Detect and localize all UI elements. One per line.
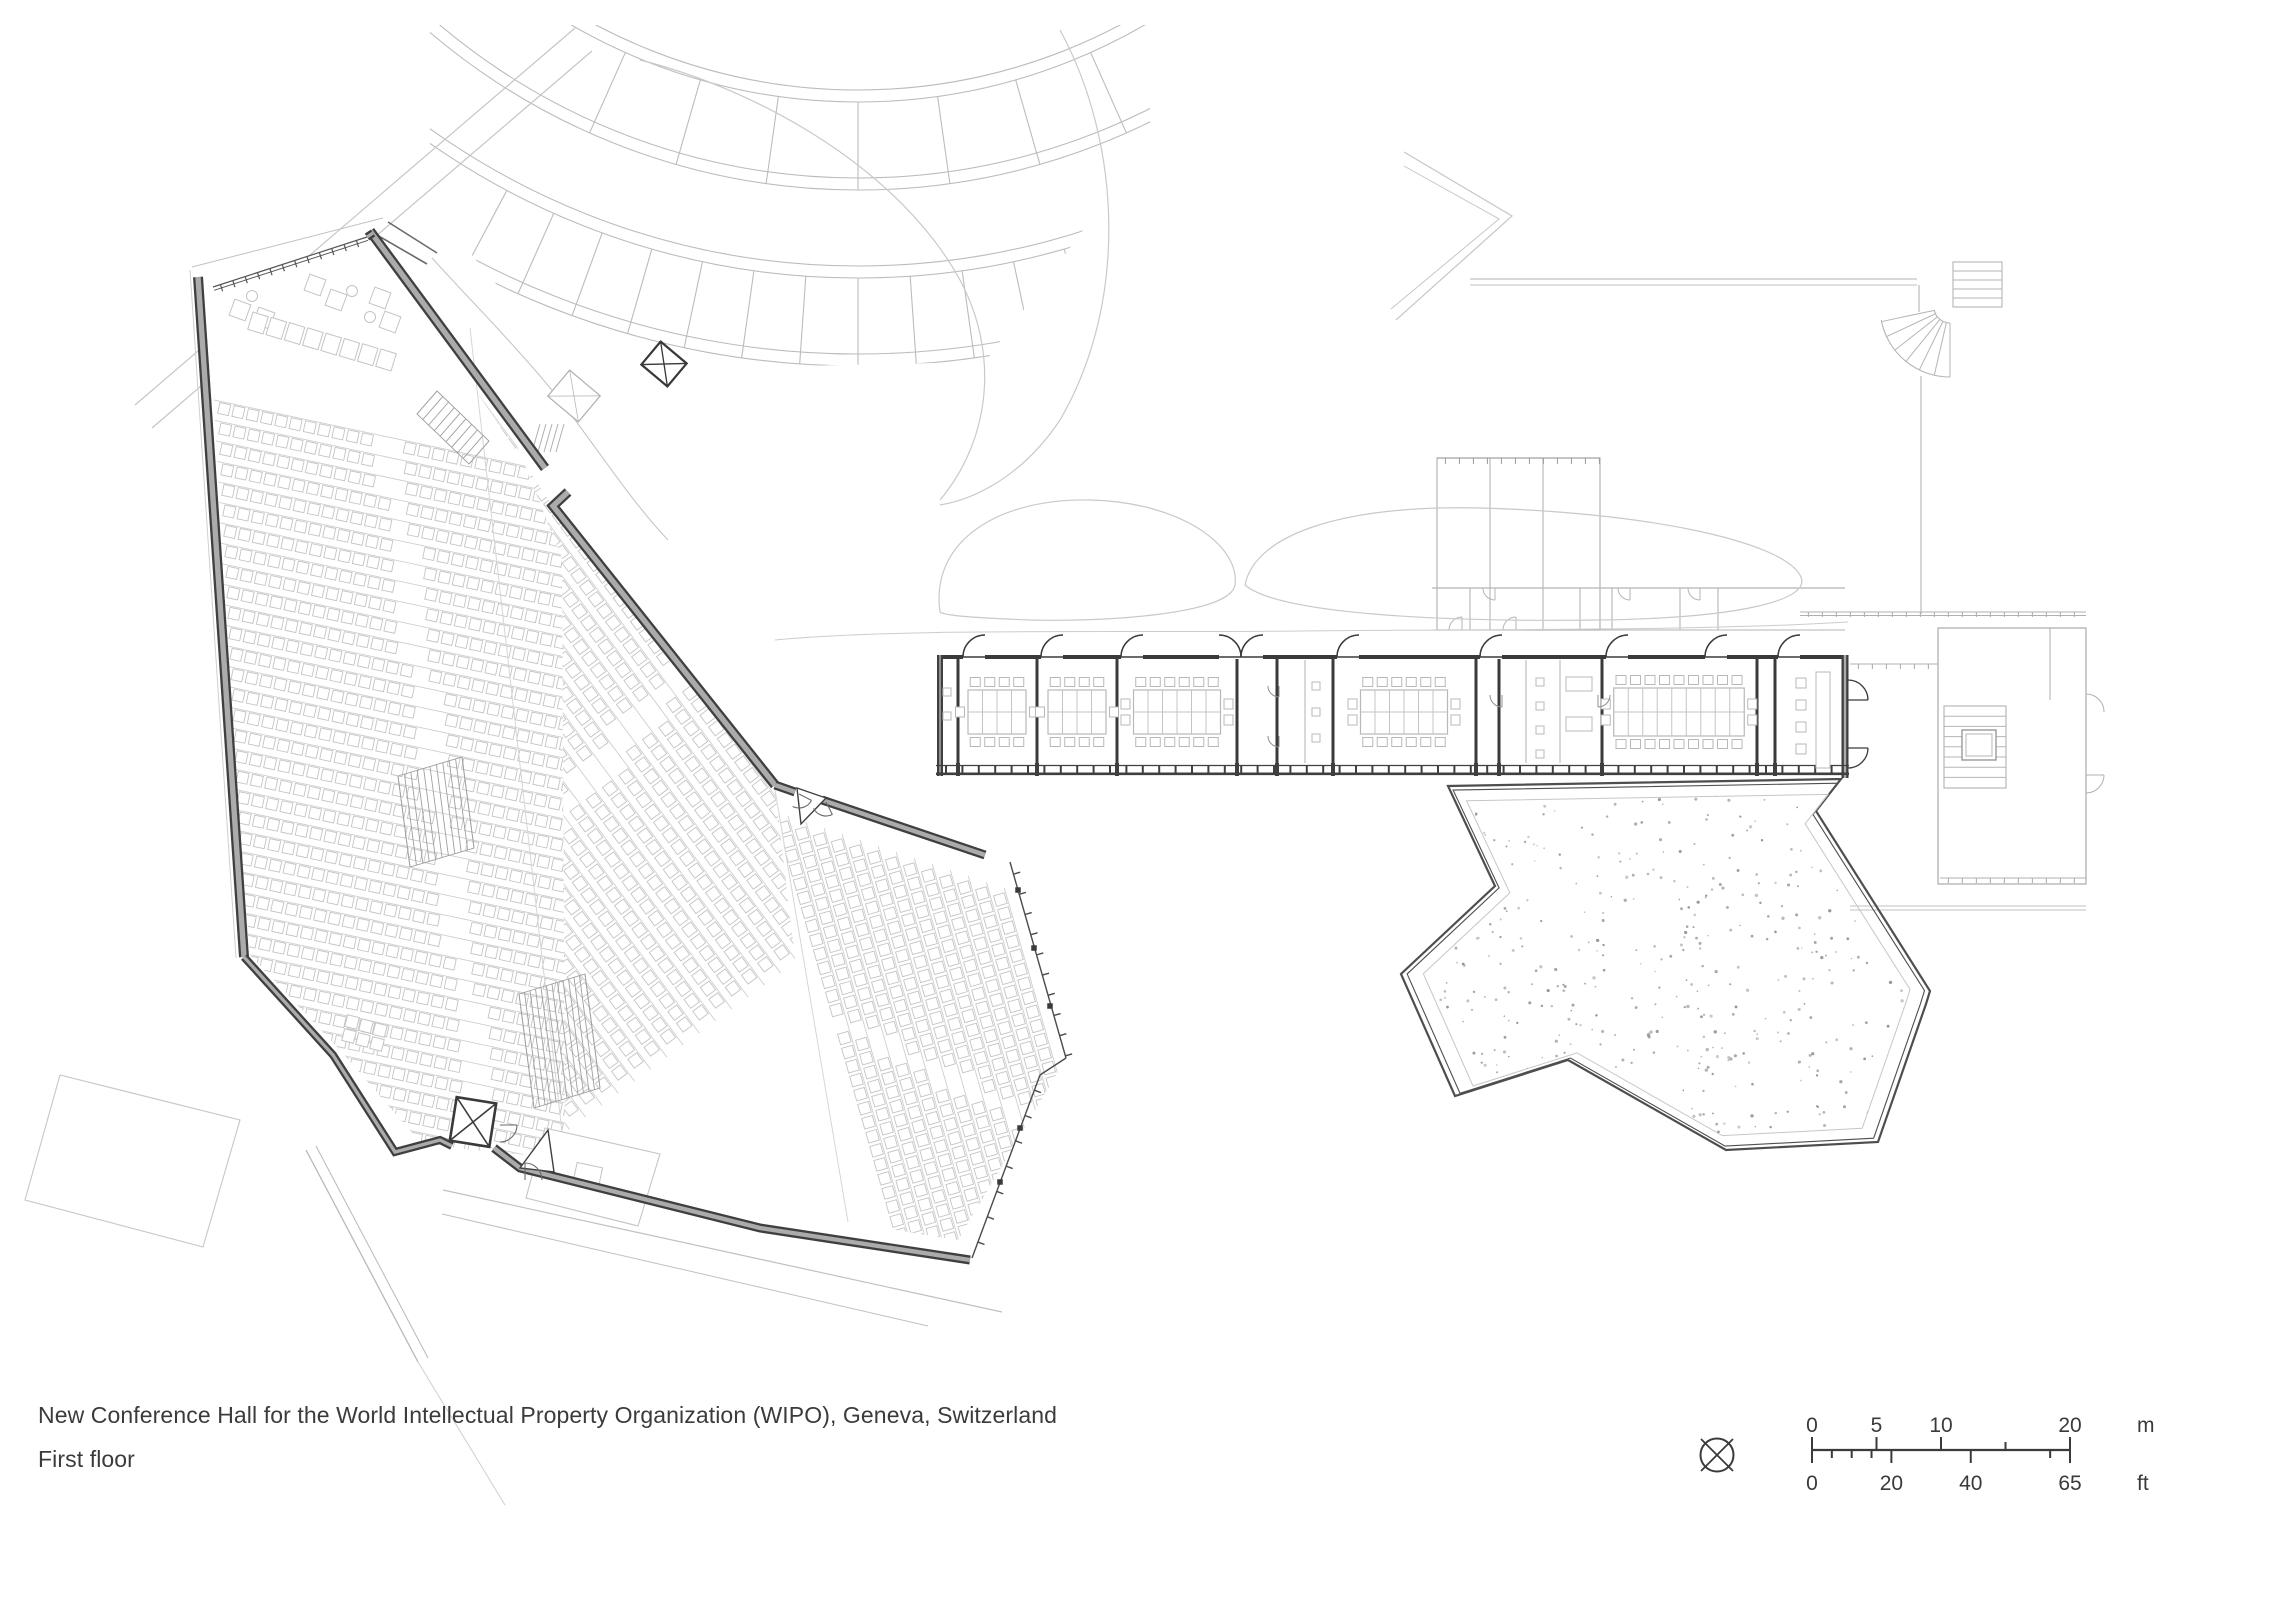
caption-block: New Conference Hall for the World Intell…: [38, 1393, 1057, 1481]
svg-text:20: 20: [1880, 1472, 1903, 1495]
svg-text:40: 40: [1959, 1472, 1982, 1495]
svg-text:20: 20: [2058, 1414, 2081, 1437]
svg-text:5: 5: [1871, 1414, 1883, 1437]
scale-bar: 0510200204065mft: [1806, 1414, 2154, 1495]
landscape-paths: [640, 30, 1848, 640]
meeting-room-wing: [936, 635, 1868, 778]
north-orientation-icon: [1701, 1439, 1734, 1472]
floor-plan-drawing: [0, 0, 2271, 1600]
svg-text:0: 0: [1806, 1472, 1818, 1495]
legend-block: 0510200204065mft: [1662, 1406, 2262, 1502]
svg-text:0: 0: [1806, 1414, 1818, 1437]
caption-floor-label: First floor: [38, 1437, 1057, 1481]
svg-text:65: 65: [2058, 1472, 2081, 1495]
caption-project-title: New Conference Hall for the World Intell…: [38, 1393, 1057, 1437]
svg-text:ft: ft: [2137, 1472, 2149, 1495]
svg-text:10: 10: [1929, 1414, 1952, 1437]
scale-bar-and-north: 0510200204065mft: [1662, 1406, 2262, 1502]
roof-terrace: [1401, 779, 1930, 1150]
svg-text:m: m: [2137, 1414, 2155, 1437]
plan-sheet: New Conference Hall for the World Intell…: [0, 0, 2271, 1600]
